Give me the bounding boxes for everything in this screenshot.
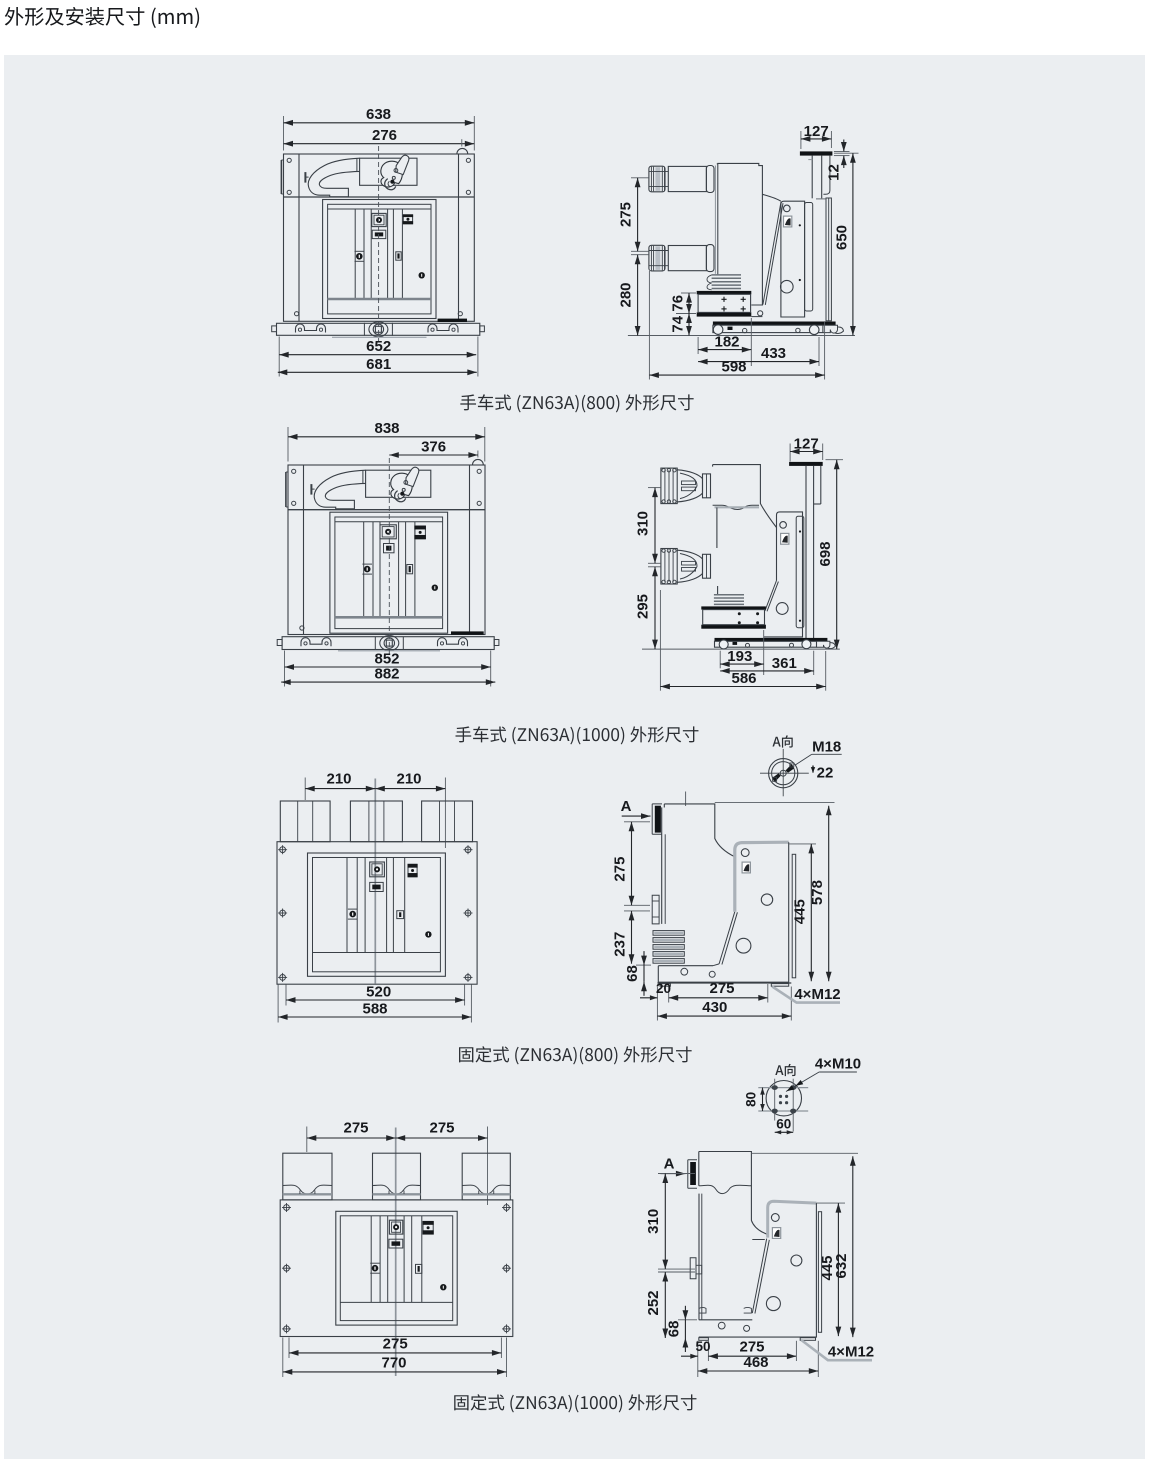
svg-text:80: 80	[743, 1092, 758, 1107]
svg-text:520: 520	[366, 984, 391, 1001]
svg-text:237: 237	[612, 932, 629, 957]
svg-text:210: 210	[396, 770, 421, 787]
svg-text:76: 76	[669, 295, 686, 312]
svg-text:361: 361	[772, 655, 797, 672]
svg-text:586: 586	[731, 670, 756, 687]
svg-text:280: 280	[618, 282, 635, 307]
svg-text:275: 275	[343, 1120, 368, 1137]
svg-text:310: 310	[635, 511, 652, 536]
svg-text:275: 275	[709, 980, 734, 997]
svg-text:652: 652	[366, 338, 391, 355]
svg-text:20: 20	[656, 981, 671, 996]
svg-text:A: A	[621, 798, 632, 815]
svg-text:598: 598	[721, 359, 746, 376]
svg-text:4×M12: 4×M12	[794, 986, 840, 1003]
svg-text:430: 430	[702, 999, 727, 1016]
svg-text:193: 193	[727, 648, 752, 665]
svg-text:578: 578	[809, 880, 826, 905]
svg-text:A: A	[664, 1156, 675, 1173]
svg-text:770: 770	[381, 1354, 406, 1371]
svg-text:295: 295	[635, 594, 652, 619]
svg-text:698: 698	[817, 541, 834, 566]
svg-text:127: 127	[794, 435, 819, 452]
svg-text:50: 50	[695, 1339, 710, 1354]
svg-text:275: 275	[612, 857, 629, 882]
svg-text:588: 588	[362, 1001, 387, 1018]
svg-text:638: 638	[366, 106, 391, 123]
svg-text:445: 445	[792, 899, 809, 924]
svg-text:882: 882	[374, 666, 399, 683]
svg-text:M18: M18	[812, 739, 841, 756]
svg-text:68: 68	[624, 965, 641, 982]
svg-text:210: 210	[326, 770, 351, 787]
svg-text:127: 127	[804, 123, 829, 140]
svg-text:68: 68	[665, 1321, 682, 1338]
svg-text:838: 838	[374, 420, 399, 437]
svg-text:650: 650	[833, 225, 850, 250]
svg-text:22: 22	[817, 765, 834, 782]
svg-text:275: 275	[618, 202, 635, 227]
svg-text:433: 433	[761, 345, 786, 362]
svg-text:12: 12	[825, 164, 842, 181]
svg-text:276: 276	[372, 127, 397, 144]
svg-text:74: 74	[669, 315, 686, 332]
svg-text:252: 252	[645, 1290, 662, 1315]
svg-text:182: 182	[714, 333, 739, 350]
svg-text:275: 275	[429, 1120, 454, 1137]
svg-text:4×M10: 4×M10	[815, 1056, 861, 1073]
svg-text:681: 681	[366, 356, 391, 373]
svg-text:275: 275	[383, 1335, 408, 1352]
svg-text:60: 60	[776, 1117, 791, 1132]
svg-text:468: 468	[743, 1354, 768, 1371]
svg-text:376: 376	[421, 439, 446, 456]
svg-text:632: 632	[833, 1253, 850, 1278]
svg-text:310: 310	[645, 1209, 662, 1234]
svg-text:4×M12: 4×M12	[828, 1344, 874, 1361]
